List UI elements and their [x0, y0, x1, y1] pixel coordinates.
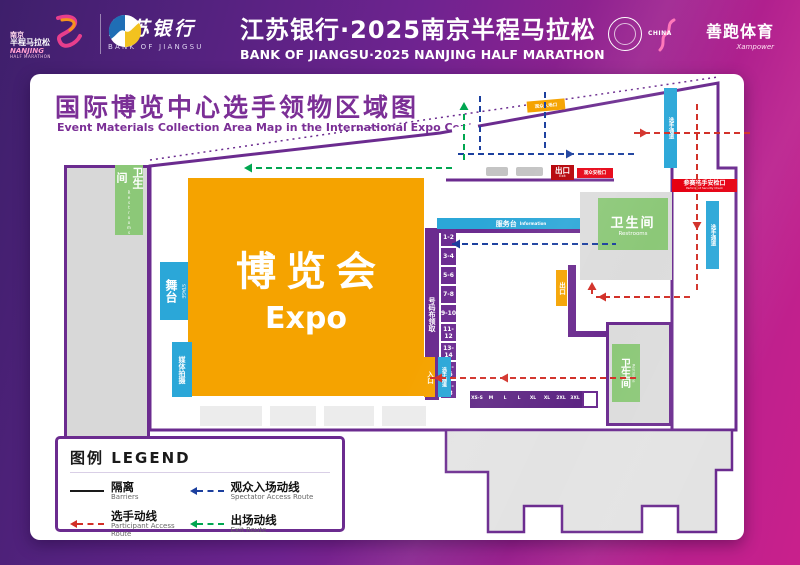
size-cell: 3XL	[568, 391, 582, 408]
size-cell: XL	[526, 391, 540, 408]
expo-label-en: Expo	[265, 301, 347, 336]
size-cell: XL	[540, 391, 554, 408]
size-cell: M	[484, 391, 498, 408]
legend-item-barriers: 隔离 Barriers	[70, 481, 190, 501]
participant-corridor-right: 选手通道	[706, 201, 719, 269]
participant-security-gate: 参赛选手安检口 Participant Security Check	[672, 179, 737, 192]
legend-item-exit: 出场动线 Exit Route	[190, 510, 330, 538]
size-cell-empty	[582, 391, 598, 408]
legend-item-participant: 选手动线 Participant Access Route	[70, 510, 190, 538]
legend-item-spectator: 观众入场动线 Spectator Access Route	[190, 481, 330, 501]
gray-gate-chip	[486, 167, 508, 176]
event-logo-race-en: HALF MARATHON	[10, 55, 51, 59]
bank-name-cn: 江苏银行	[108, 14, 204, 41]
restroom-ne-label-en: Restrooms	[618, 231, 647, 237]
stage-area: 舞台 STAGE	[160, 262, 188, 320]
corridor-right-label: 选手通道	[709, 224, 717, 246]
mid-exit-gate: 出口	[556, 270, 567, 306]
restroom-west: 卫生间 Restrooms	[115, 165, 143, 235]
booth-5-6: 5-6	[441, 267, 456, 284]
legend-exit-cn: 出场动线	[231, 514, 277, 527]
participant-lane-gate: 选手通道	[438, 357, 451, 397]
spectator-line-sample	[190, 487, 224, 495]
sponsor-name-cn: 善跑体育	[706, 18, 774, 42]
booth-3-4: 3-4	[441, 248, 456, 265]
service-label-cn: 服务台	[496, 219, 517, 229]
athletics-association-badge-icon	[608, 17, 642, 51]
restroom-se-label-cn: 卫生间	[617, 358, 632, 388]
legend-barriers-en: Barriers	[111, 494, 139, 502]
participant-line-sample	[70, 520, 104, 528]
gray-gate-chip	[516, 167, 543, 176]
booth-11-12: 11-12	[441, 324, 456, 341]
poster: 南京 半程马拉松 NANJING HALF MARATHON 江苏银行 BANK…	[0, 0, 800, 565]
header-title-en: BANK OF JIANGSU·2025 NANJING HALF MARATH…	[240, 47, 590, 62]
booth-1-2: 1-2	[441, 229, 456, 246]
legend-spectator-cn: 观众入场动线	[231, 481, 314, 494]
participant-entry-gate: 入口	[424, 357, 435, 397]
participant-corridor-top: 选手通道	[664, 88, 677, 168]
restroom-ne-label-cn: 卫生间	[610, 212, 655, 231]
spectator-security-gate: 观众安检口	[577, 168, 613, 178]
legend-title: 图例 LEGEND	[70, 447, 330, 473]
restroom-west-label: 卫生间	[113, 165, 145, 190]
service-label-en: Information	[520, 221, 547, 226]
stage-label-cn: 舞台	[163, 279, 180, 303]
sponsor-logo: 善跑体育 Xampower	[706, 18, 774, 51]
expo-label-cn: 博览会	[226, 239, 386, 297]
map-title-en: Event Materials Collection Area Map in t…	[57, 121, 486, 134]
bank-name-en: BANK OF JIANGSU	[108, 43, 204, 51]
header-title: 江苏银行·2025南京半程马拉松 BANK OF JIANGSU·2025 NA…	[240, 10, 590, 62]
expo-hall: 博览会 Expo	[188, 178, 424, 396]
size-cell: L	[498, 391, 512, 408]
restroom-west-label-en: Restrooms	[127, 190, 132, 235]
legend-spectator-en: Spectator Access Route	[231, 494, 314, 502]
stage-label-en: STAGE	[180, 284, 185, 299]
size-cell: 2XL	[554, 391, 568, 408]
header-divider	[100, 14, 101, 54]
bank-logo: 江苏银行 BANK OF JIANGSU	[108, 14, 204, 51]
entry-gate-label: 入口	[425, 371, 435, 384]
participant-security-label-en: Participant Security Check	[686, 187, 723, 190]
china-athletics-logo: CHINA	[648, 18, 682, 52]
lane-gate-label: 选手通道	[441, 367, 448, 387]
corridor-top-label: 选手通道	[667, 117, 675, 139]
size-cell: XS-S	[470, 391, 484, 408]
size-cell: L	[512, 391, 526, 408]
map-title-cn: 国际博览中心选手领物区域图	[55, 88, 419, 124]
restroom-northeast: 卫生间 Restrooms	[598, 198, 668, 250]
media-area: 媒体拍摄	[172, 342, 192, 397]
legend-exit-en: Exit Route	[231, 527, 277, 535]
event-logo: 南京 半程马拉松 NANJING HALF MARATHON	[10, 10, 98, 62]
china-athletics-label: CHINA	[648, 30, 672, 37]
legend-barriers-cn: 隔离	[111, 481, 139, 494]
booth-9-10: 9-10	[441, 305, 456, 322]
booth-7-8: 7-8	[441, 286, 456, 303]
legend: 图例 LEGEND 隔离 Barriers 观众入场动线 Spectator A…	[55, 436, 345, 532]
exit-gate-label-en: Exit	[559, 175, 566, 179]
legend-participant-en: Participant Access Route	[111, 523, 190, 538]
barrier-line-sample	[70, 490, 104, 492]
sponsor-name-en: Xampower	[706, 43, 774, 51]
exit-gate: 出口 Exit	[551, 165, 574, 180]
header-title-cn: 江苏银行·2025南京半程马拉松	[240, 10, 590, 45]
mid-exit-label: 出口	[557, 282, 567, 295]
exit-line-sample	[190, 520, 224, 528]
media-label: 媒体拍摄	[177, 356, 187, 384]
restroom-se-label-en: Restrooms	[632, 364, 636, 383]
restroom-southeast: 卫生间 Restrooms	[612, 344, 640, 402]
